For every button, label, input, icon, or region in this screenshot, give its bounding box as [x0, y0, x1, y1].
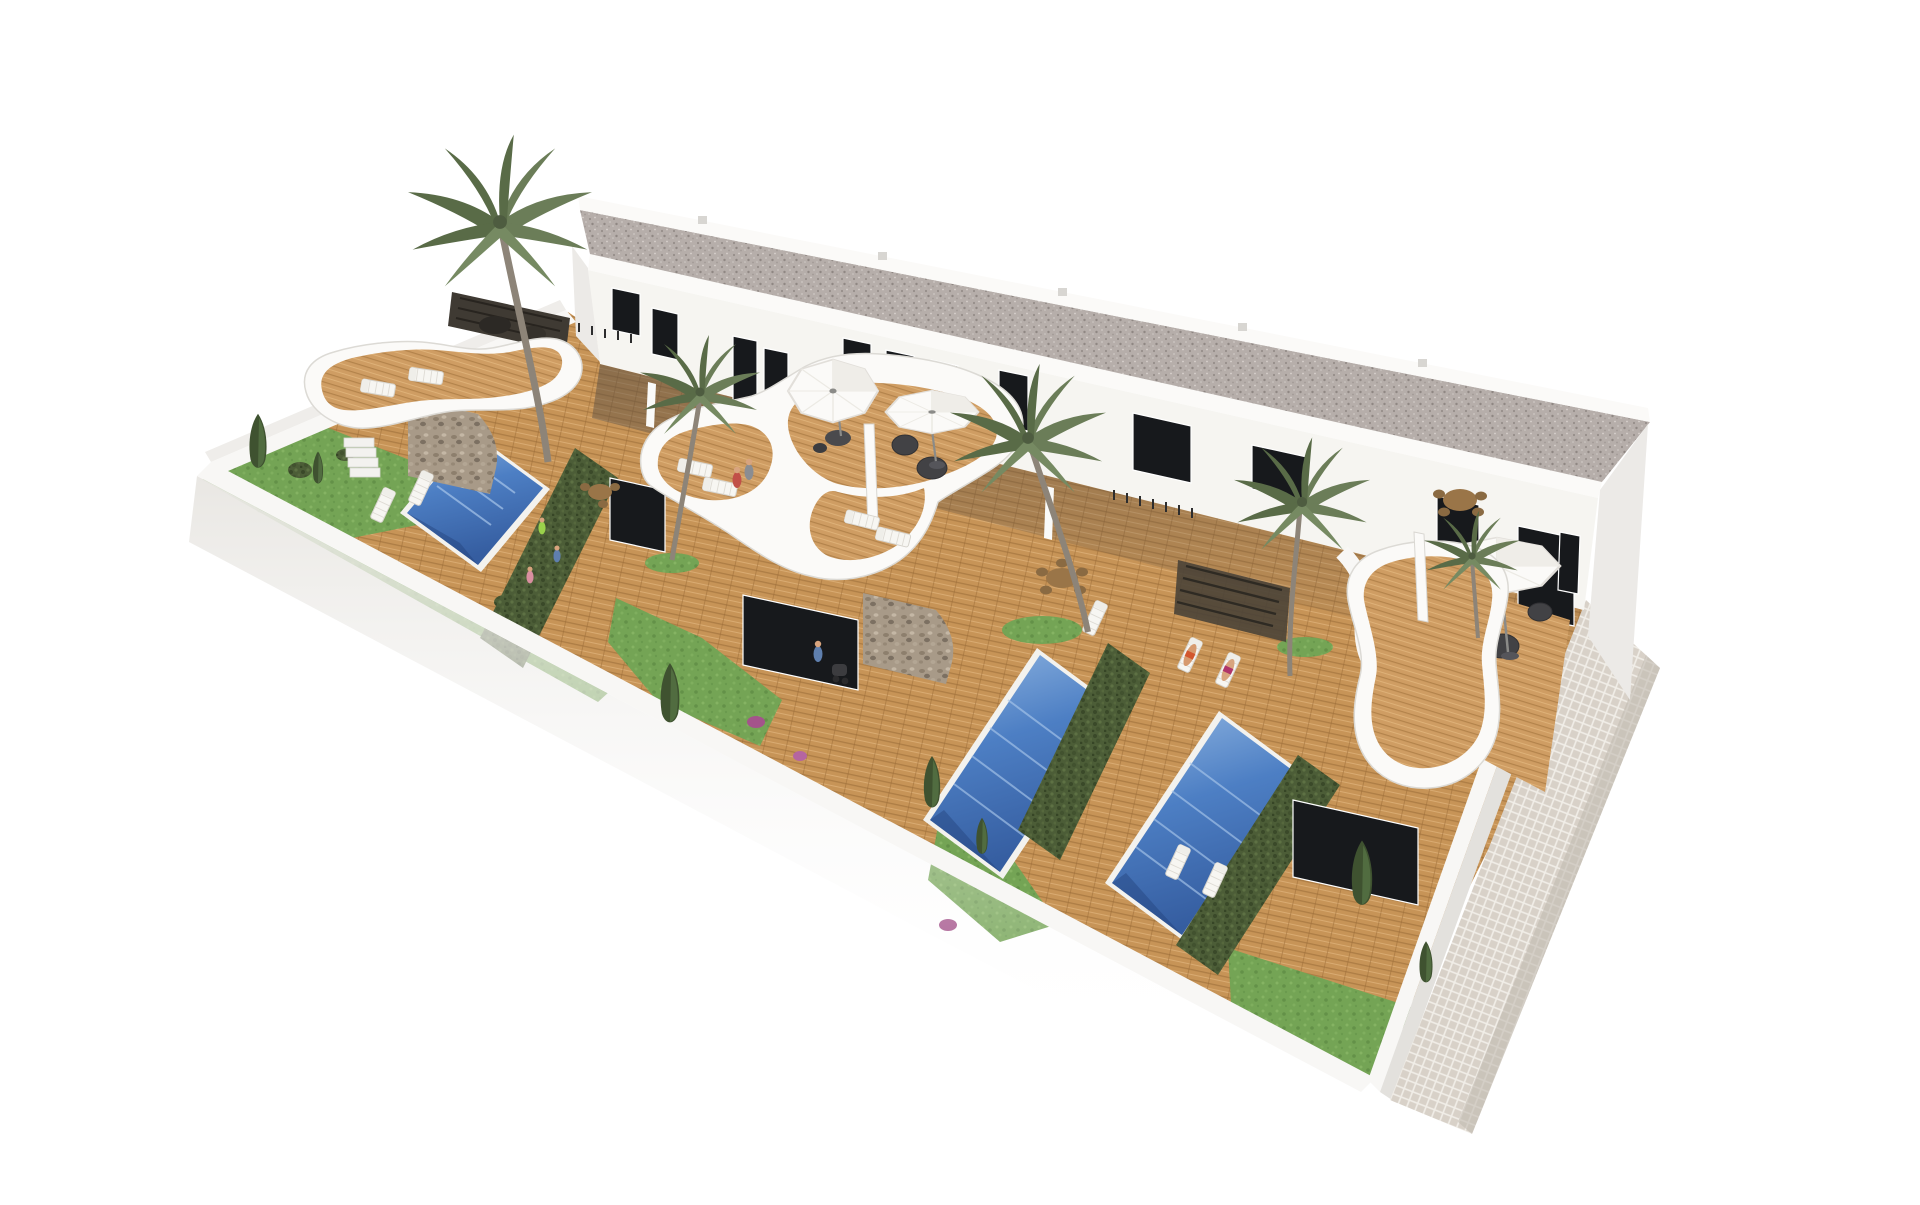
bean-bag — [892, 435, 918, 455]
window — [612, 288, 640, 336]
person — [553, 545, 560, 562]
person — [538, 517, 545, 534]
villa-render — [0, 0, 1920, 1205]
person — [814, 641, 823, 662]
flower-bush-1 — [747, 716, 765, 728]
person — [745, 459, 754, 480]
render-canvas — [0, 0, 1920, 1205]
cypress-tree — [249, 414, 266, 468]
bean-bag — [1528, 603, 1552, 621]
bush-1 — [288, 462, 312, 478]
flower-bush-2 — [793, 751, 807, 761]
grass-ring-palm-3 — [1002, 616, 1082, 644]
window — [1558, 532, 1580, 594]
person — [526, 566, 533, 583]
window — [1133, 413, 1191, 483]
bush-3 — [494, 595, 516, 609]
person — [733, 467, 742, 488]
